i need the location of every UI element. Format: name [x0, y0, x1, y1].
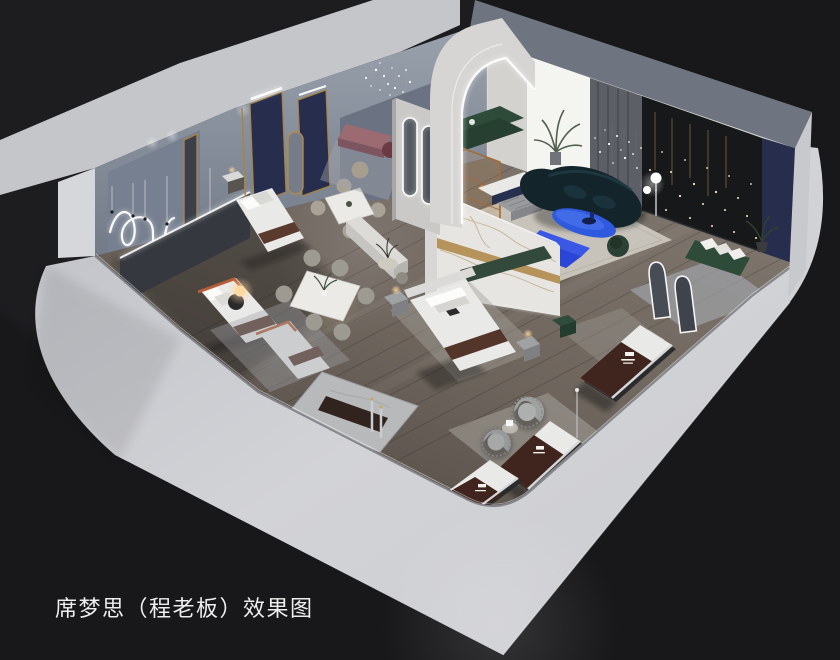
caption: 席梦思（程老板）效果图: [55, 591, 314, 623]
green-velvet-chair: [607, 235, 629, 257]
plant-pot: [550, 152, 561, 165]
stool: [396, 272, 408, 284]
gold-standing-mirror: [288, 132, 303, 194]
gold-door-frame: [184, 134, 197, 230]
showroom-render: [0, 0, 840, 660]
left-wall-end-cap: [58, 168, 95, 258]
beige-armchair: [352, 162, 369, 179]
oval-led-mirror-1: [403, 118, 417, 196]
render-canvas: 席梦思（程老板）效果图: [0, 0, 840, 660]
